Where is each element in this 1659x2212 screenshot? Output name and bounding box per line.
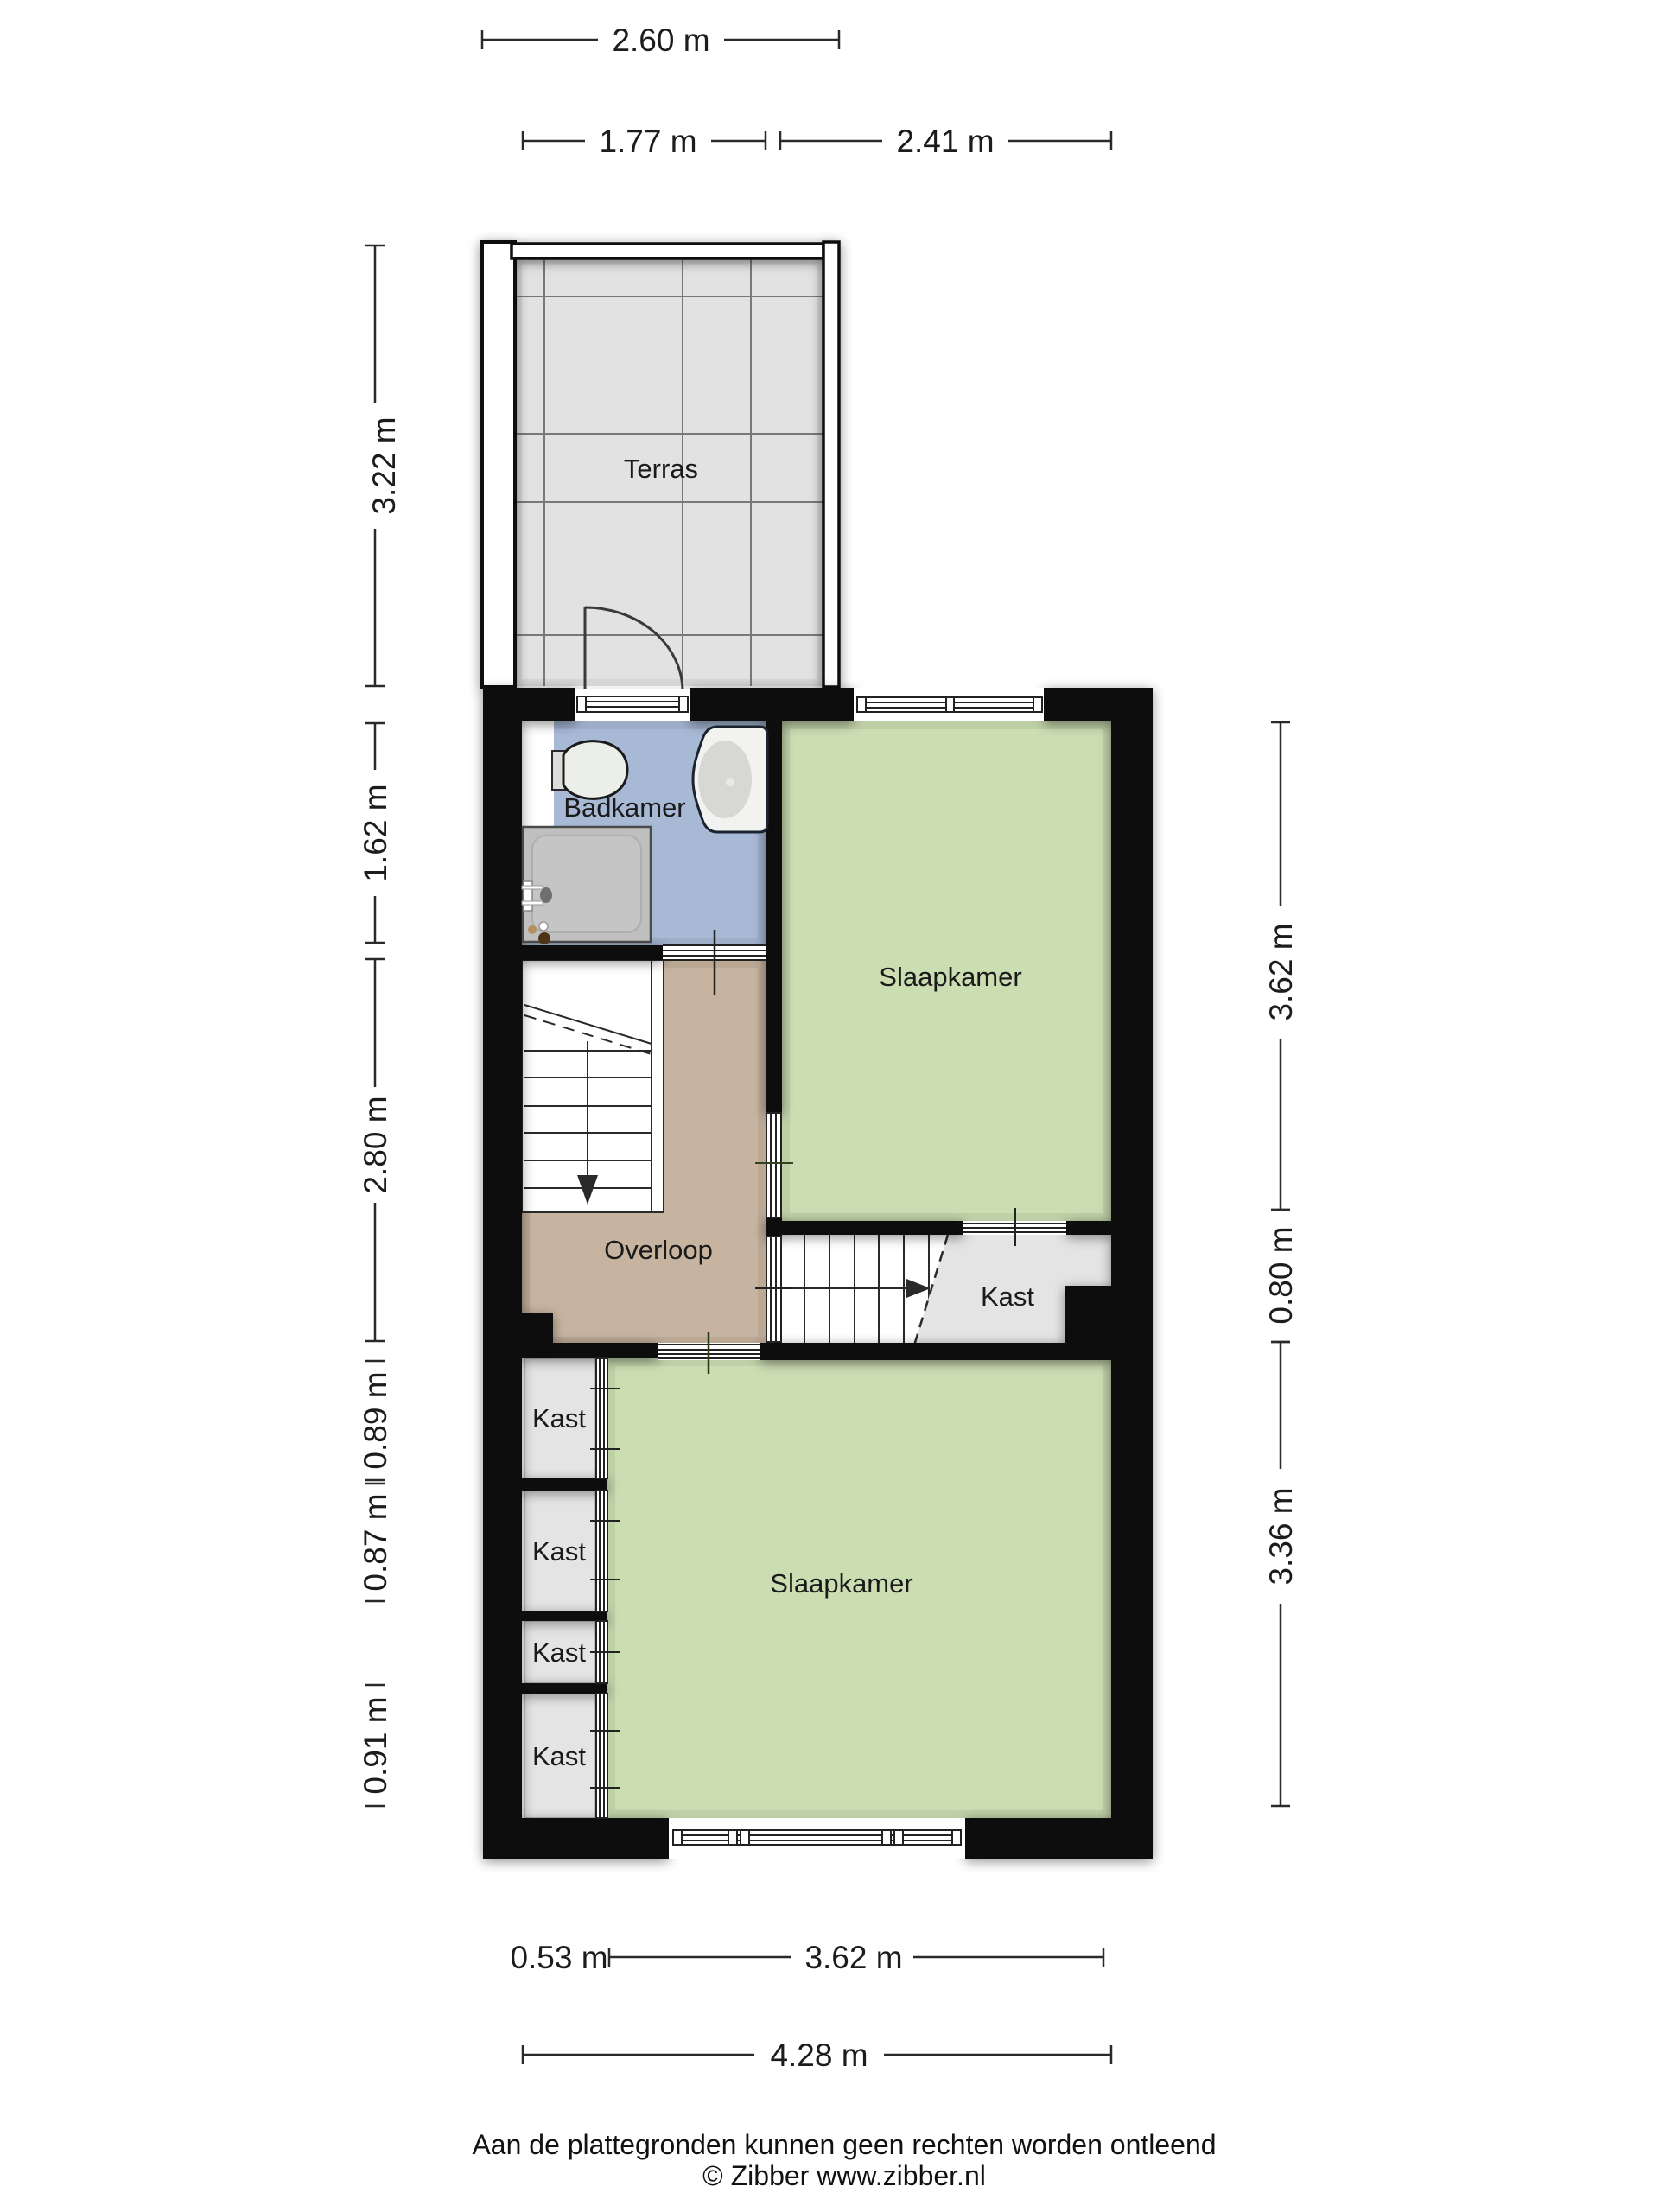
svg-text:Terras: Terras <box>624 454 698 484</box>
svg-text:0.91 m: 0.91 m <box>358 1696 393 1794</box>
svg-text:3.62 m: 3.62 m <box>804 1940 902 1975</box>
svg-text:Kast: Kast <box>532 1637 586 1668</box>
svg-text:Overloop: Overloop <box>604 1235 713 1265</box>
svg-text:2.41 m: 2.41 m <box>896 124 994 159</box>
svg-text:2.80 m: 2.80 m <box>358 1096 393 1193</box>
svg-text:Kast: Kast <box>532 1403 586 1433</box>
svg-text:0.87 m: 0.87 m <box>358 1493 393 1591</box>
svg-text:1.62 m: 1.62 m <box>358 784 393 881</box>
svg-text:Slaapkamer: Slaapkamer <box>879 962 1021 992</box>
svg-text:3.36 m: 3.36 m <box>1263 1487 1299 1585</box>
svg-text:3.62 m: 3.62 m <box>1263 923 1299 1020</box>
svg-text:Kast: Kast <box>981 1281 1034 1312</box>
svg-text:3.22 m: 3.22 m <box>366 416 402 514</box>
svg-text:Kast: Kast <box>532 1741 586 1771</box>
svg-text:Slaapkamer: Slaapkamer <box>770 1568 912 1599</box>
svg-text:2.60 m: 2.60 m <box>612 22 709 58</box>
svg-text:© Zibber www.zibber.nl: © Zibber www.zibber.nl <box>702 2160 986 2191</box>
svg-text:0.89 m: 0.89 m <box>358 1371 393 1469</box>
svg-text:0.80 m: 0.80 m <box>1263 1226 1299 1324</box>
svg-text:Aan de plattegronden kunnen ge: Aan de plattegronden kunnen geen rechten… <box>472 2129 1216 2160</box>
svg-text:0.53 m: 0.53 m <box>510 1940 607 1975</box>
svg-text:4.28 m: 4.28 m <box>770 2037 868 2073</box>
svg-text:Kast: Kast <box>532 1536 586 1567</box>
svg-text:1.77 m: 1.77 m <box>599 124 696 159</box>
